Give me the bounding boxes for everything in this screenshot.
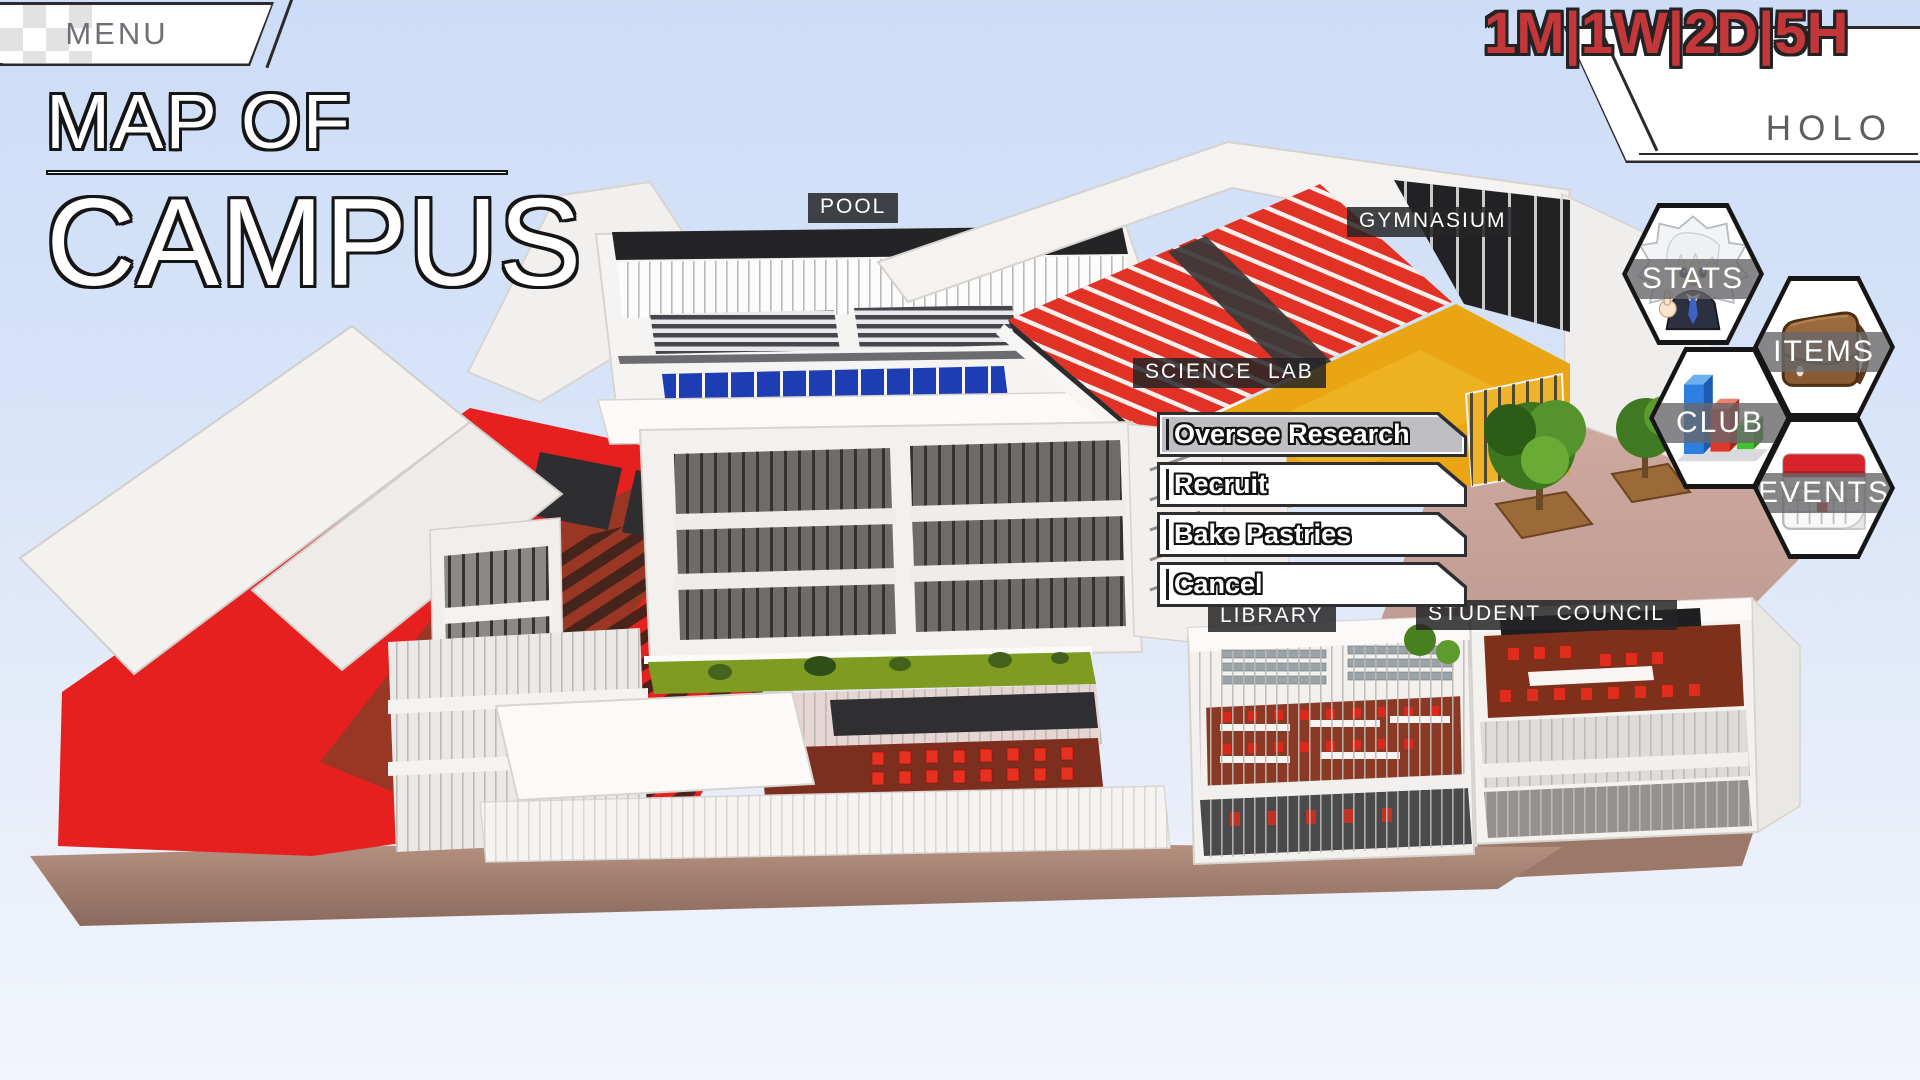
menu-item-label: Cancel xyxy=(1174,562,1263,607)
title-line-1: MAP OF xyxy=(46,84,583,161)
menu-item-label: Recruit xyxy=(1174,462,1267,507)
menu-item-tick xyxy=(1166,569,1169,600)
action-menu-item-cancel[interactable]: Cancel xyxy=(1157,562,1467,607)
menu-item-label: Oversee Research xyxy=(1174,412,1410,457)
map-label-pool[interactable]: POOL xyxy=(808,193,898,223)
student-council-building[interactable] xyxy=(1470,598,1800,844)
events-button-label: EVENTS xyxy=(1758,476,1890,510)
action-menu-item-bake-pastries[interactable]: Bake Pastries xyxy=(1157,512,1467,557)
items-button-band: ITEMS xyxy=(1758,332,1890,372)
action-menu-item-recruit[interactable]: Recruit xyxy=(1157,462,1467,507)
game-time-display: 1M|1W|2D|5H xyxy=(1484,0,1894,67)
menu-button-label: MENU xyxy=(0,2,234,66)
game-screen: { "header": { "menu_label": "MENU", "tim… xyxy=(0,0,1920,1080)
stats-button-band: STATS xyxy=(1627,259,1759,299)
menu-item-tick xyxy=(1166,419,1169,450)
menu-item-label: Bake Pastries xyxy=(1174,512,1351,557)
holo-label: HOLO xyxy=(1766,109,1893,149)
club-button-band: CLUB xyxy=(1654,403,1786,443)
club-button-label: CLUB xyxy=(1676,406,1764,440)
library-building[interactable] xyxy=(1188,616,1474,864)
items-button-label: ITEMS xyxy=(1773,335,1875,369)
menu-button[interactable]: MENU xyxy=(0,2,274,66)
menu-item-tick xyxy=(1166,519,1169,550)
stats-button-label: STATS xyxy=(1642,262,1744,296)
events-button-face: EVENTS xyxy=(1758,422,1890,554)
action-menu: Oversee Research Recruit Bake Pastries C… xyxy=(1157,412,1467,607)
menu-item-tick xyxy=(1166,469,1169,500)
page-title: MAP OF CAMPUS xyxy=(46,84,583,305)
holo-banner-inner-line-bottom xyxy=(1639,153,1918,156)
stats-button-face: STATS xyxy=(1627,208,1759,340)
events-button-band: EVENTS xyxy=(1758,473,1890,513)
action-menu-item-oversee-research[interactable]: Oversee Research xyxy=(1157,412,1467,457)
title-line-2: CAMPUS xyxy=(46,181,583,305)
map-label-science-lab[interactable]: SCIENCE LAB xyxy=(1133,358,1326,388)
map-label-gymnasium[interactable]: GYMNASIUM xyxy=(1347,207,1519,237)
